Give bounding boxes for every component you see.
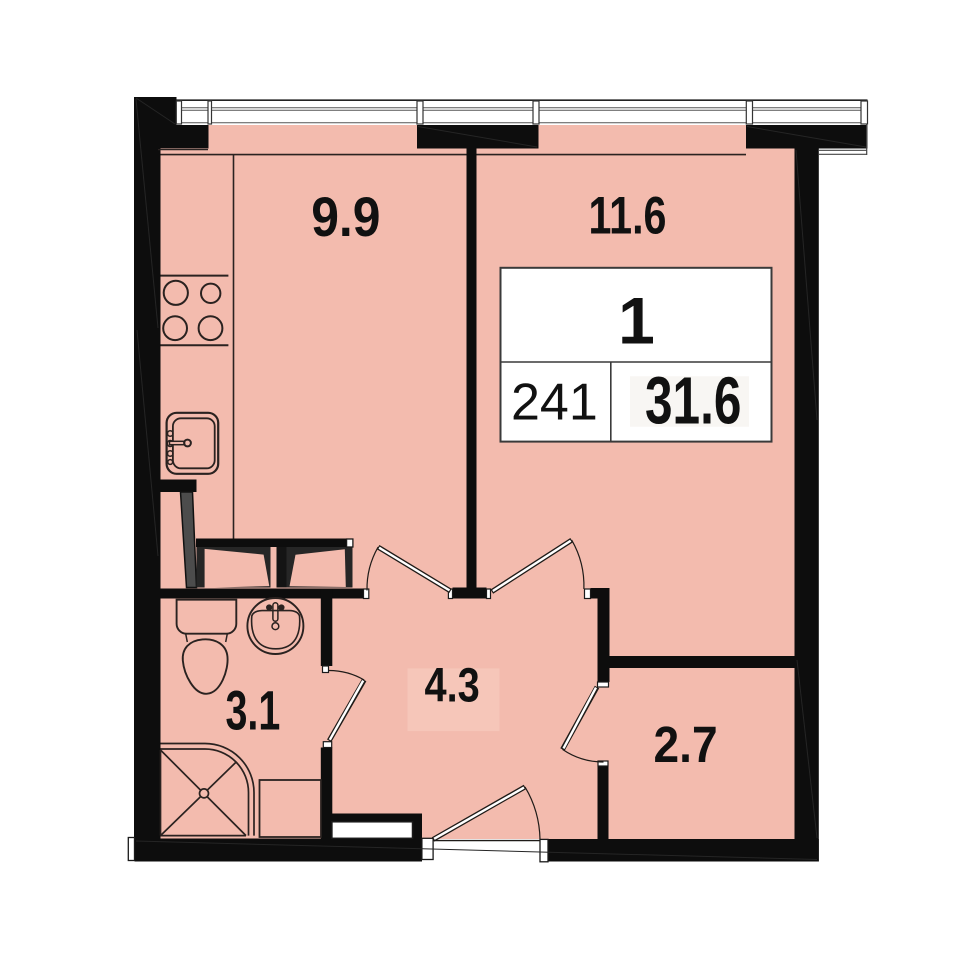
svg-text:241: 241 xyxy=(511,374,598,432)
svg-text:9.9: 9.9 xyxy=(311,185,380,248)
svg-text:11.6: 11.6 xyxy=(589,186,667,245)
svg-text:31.6: 31.6 xyxy=(645,363,741,438)
svg-text:1: 1 xyxy=(618,284,655,358)
svg-text:4.3: 4.3 xyxy=(425,660,480,713)
svg-text:2.7: 2.7 xyxy=(654,716,718,773)
svg-text:3.1: 3.1 xyxy=(226,680,281,742)
